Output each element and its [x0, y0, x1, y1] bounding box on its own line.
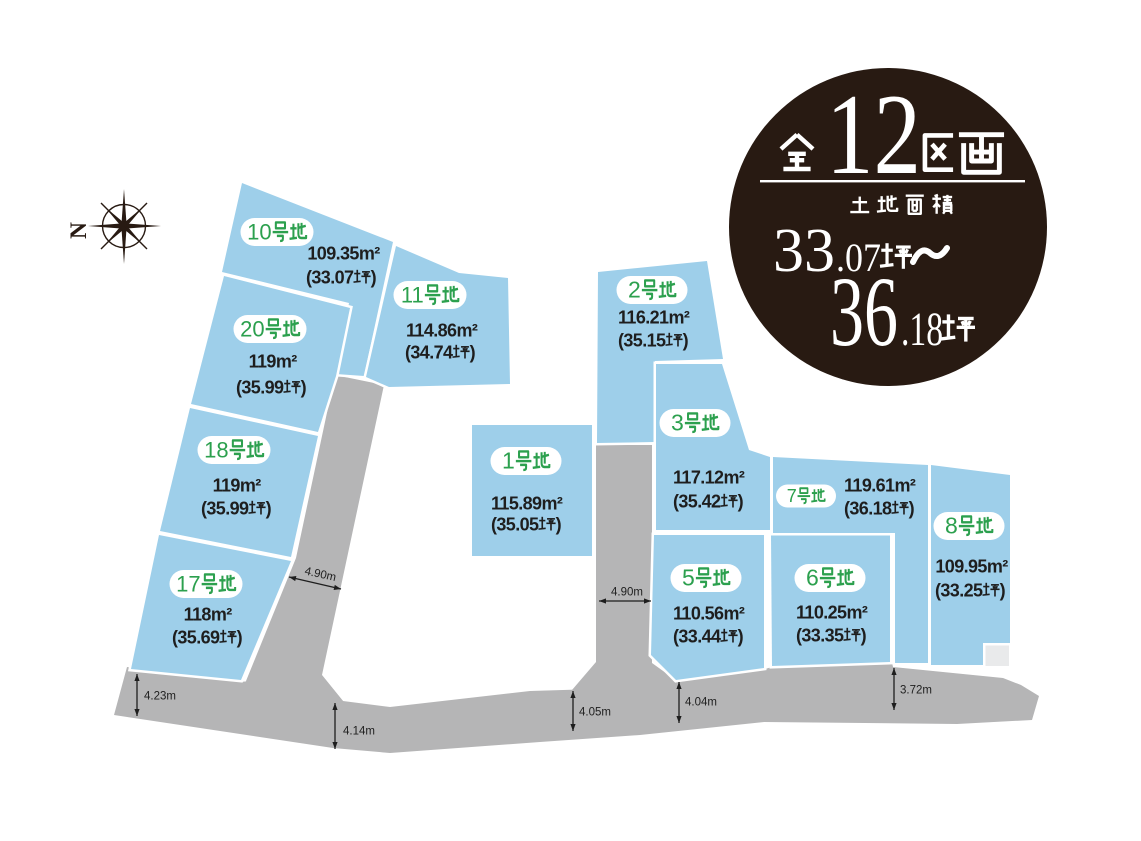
svg-text:117.12m²: 117.12m² [673, 468, 745, 488]
svg-text:): ) [909, 499, 915, 519]
svg-text:1: 1 [502, 448, 515, 474]
svg-text:6: 6 [806, 565, 819, 591]
svg-text:(35.99: (35.99 [201, 499, 249, 519]
svg-text:18: 18 [204, 438, 228, 463]
svg-text:4.23m: 4.23m [144, 690, 176, 702]
svg-text:.18: .18 [901, 303, 943, 356]
svg-text:): ) [861, 626, 867, 646]
svg-text:119m²: 119m² [249, 352, 298, 372]
svg-text:(35.05: (35.05 [491, 515, 539, 535]
svg-text:115.89m²: 115.89m² [491, 494, 563, 514]
svg-text:118m²: 118m² [184, 605, 233, 625]
svg-text:3.72m: 3.72m [900, 684, 932, 696]
svg-text:7: 7 [787, 486, 797, 506]
svg-text:(36.18: (36.18 [844, 499, 892, 519]
svg-text:): ) [738, 492, 744, 512]
svg-text:): ) [738, 627, 744, 647]
svg-text:(35.69: (35.69 [172, 628, 220, 648]
svg-text:5: 5 [682, 565, 695, 591]
svg-text:4.90m: 4.90m [611, 586, 643, 598]
svg-text:17: 17 [176, 572, 200, 597]
svg-text:11: 11 [401, 283, 424, 308]
svg-text:119.61m²: 119.61m² [844, 476, 916, 496]
svg-text:(35.15: (35.15 [618, 331, 666, 351]
svg-text:20: 20 [240, 317, 264, 342]
svg-text:12: 12 [826, 71, 921, 198]
svg-text:36: 36 [830, 256, 898, 367]
svg-text:8: 8 [945, 513, 958, 539]
svg-text:33: 33 [773, 217, 835, 285]
svg-text:109.95m²: 109.95m² [935, 557, 1008, 577]
svg-text:): ) [301, 378, 307, 398]
svg-text:(35.99: (35.99 [236, 378, 284, 398]
svg-text:(33.44: (33.44 [673, 627, 721, 647]
svg-text:): ) [556, 515, 562, 535]
svg-text:): ) [470, 343, 476, 363]
svg-text:4.14m: 4.14m [343, 725, 375, 737]
svg-text:(33.25: (33.25 [935, 581, 983, 601]
svg-text:): ) [371, 268, 377, 288]
svg-text:(33.07: (33.07 [306, 268, 354, 288]
svg-text:(35.42: (35.42 [673, 492, 721, 512]
svg-text:): ) [683, 331, 689, 351]
svg-text:109.35m²: 109.35m² [307, 244, 380, 264]
svg-text:(34.74: (34.74 [405, 343, 453, 363]
svg-text:10: 10 [247, 220, 271, 245]
svg-text:110.25m²: 110.25m² [796, 603, 868, 623]
svg-text:110.56m²: 110.56m² [673, 604, 745, 624]
svg-text:116.21m²: 116.21m² [618, 308, 690, 328]
svg-text:114.86m²: 114.86m² [406, 321, 478, 341]
svg-text:(33.35: (33.35 [796, 626, 844, 646]
svg-text:): ) [266, 499, 272, 519]
svg-text:3: 3 [671, 410, 684, 436]
svg-text:): ) [1000, 581, 1006, 601]
svg-text:4.04m: 4.04m [685, 696, 717, 708]
svg-text:): ) [237, 628, 243, 648]
svg-text:4.05m: 4.05m [579, 706, 611, 718]
svg-text:2: 2 [628, 277, 641, 303]
svg-text:119m²: 119m² [213, 476, 262, 496]
svg-text:N: N [66, 222, 92, 239]
